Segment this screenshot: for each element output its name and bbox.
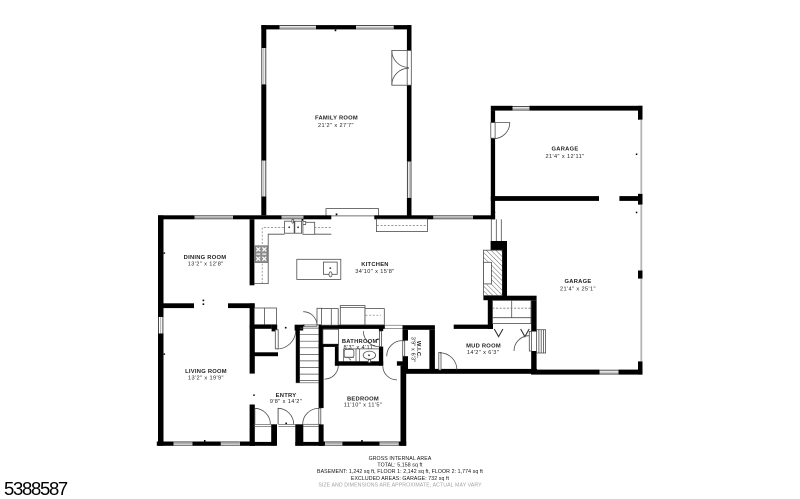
svg-text:34'10" x 15'8": 34'10" x 15'8" <box>355 269 394 275</box>
svg-text:13'2" x 12'8": 13'2" x 12'8" <box>188 262 224 268</box>
svg-text:TOTAL: 5,158 sq ft: TOTAL: 5,158 sq ft <box>377 463 423 469</box>
svg-text:FAMILY ROOM: FAMILY ROOM <box>315 116 358 122</box>
svg-text:14'2" x 6'3": 14'2" x 6'3" <box>467 350 499 356</box>
svg-text:GARAGE: GARAGE <box>552 147 579 153</box>
svg-text:21'4" x 12'11": 21'4" x 12'11" <box>546 154 585 160</box>
svg-text:GROSS INTERNAL AREA: GROSS INTERNAL AREA <box>369 456 432 462</box>
svg-text:DINING ROOM: DINING ROOM <box>184 255 227 261</box>
svg-text:21'4" x 25'1": 21'4" x 25'1" <box>560 287 596 293</box>
svg-text:3'9" x 6'3": 3'9" x 6'3" <box>409 337 415 363</box>
svg-text:MUD ROOM: MUD ROOM <box>466 344 501 350</box>
svg-text:LIVING ROOM: LIVING ROOM <box>185 369 227 375</box>
svg-text:21'2" x 27'7": 21'2" x 27'7" <box>318 123 354 129</box>
svg-text:9'8" x 14'2": 9'8" x 14'2" <box>270 399 302 405</box>
svg-text:5388587: 5388587 <box>4 478 68 499</box>
svg-text:SIZE AND DIMENSIONS ARE APPROX: SIZE AND DIMENSIONS ARE APPROXIMATE, ACT… <box>318 483 482 489</box>
svg-text:BASEMENT: 1,242 sq ft, FLOOR 1: BASEMENT: 1,242 sq ft, FLOOR 1: 2,142 sq… <box>317 469 483 475</box>
svg-text:EXCLUDED AREAS: GARAGE: 732 sq: EXCLUDED AREAS: GARAGE: 732 sq ft <box>351 476 450 482</box>
svg-text:KITCHEN: KITCHEN <box>361 262 389 268</box>
svg-text:8'3" x 4'11": 8'3" x 4'11" <box>344 345 376 351</box>
svg-text:13'2" x 19'9": 13'2" x 19'9" <box>188 376 224 382</box>
svg-text:11'10" x 11'5": 11'10" x 11'5" <box>344 402 383 408</box>
svg-text:GARAGE: GARAGE <box>565 279 592 285</box>
